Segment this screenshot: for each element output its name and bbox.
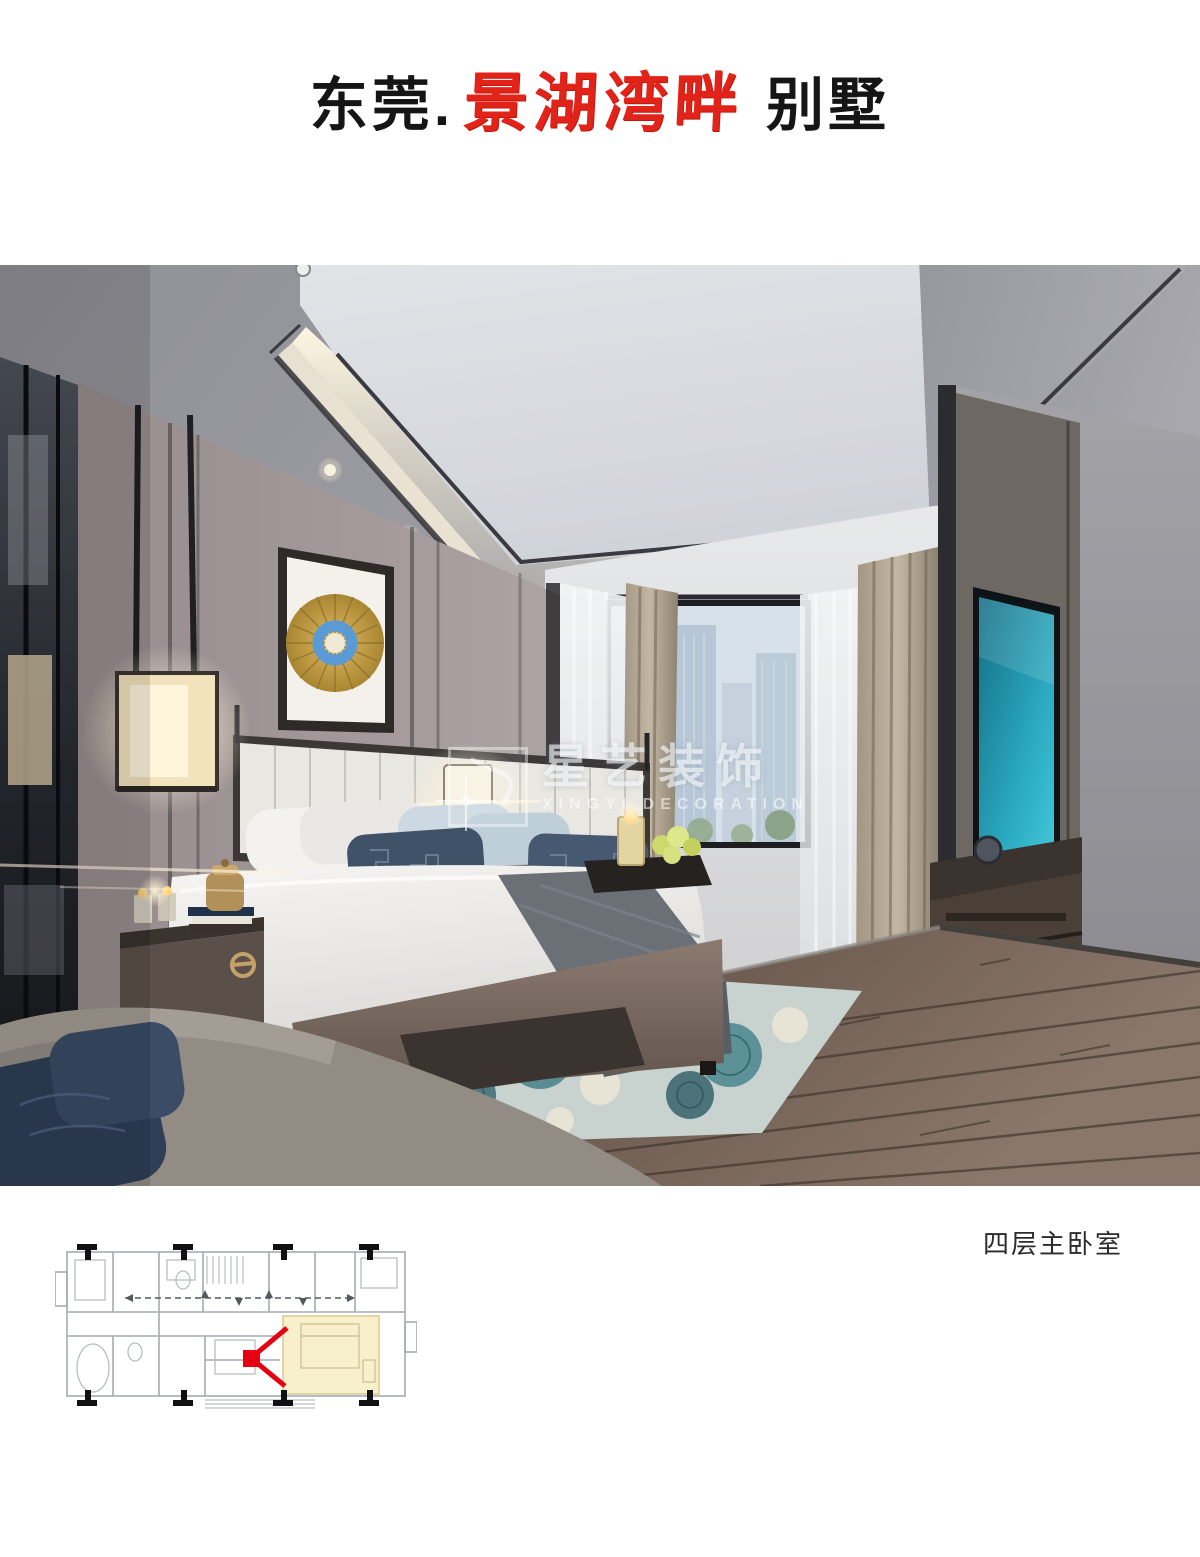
portfolio-page: 东莞.景湖湾畔别墅: [0, 0, 1200, 1557]
globe-decor-icon: [975, 837, 1001, 863]
bedroom-render-photo: 星艺装饰 XINGYI DECORATION: [0, 265, 1200, 1186]
wall-artwork: [278, 547, 394, 733]
photo-caption: 四层主卧室: [983, 1224, 1123, 1261]
bedroom-render-art: [0, 265, 1200, 1186]
title-suffix: 别墅: [766, 73, 890, 138]
title-project-name: 景湖湾畔: [462, 52, 747, 144]
floorplan-drawing: [55, 1240, 417, 1428]
title-city: 东莞.: [310, 73, 454, 138]
page-title: 东莞.景湖湾畔别墅: [0, 52, 1200, 144]
floorplan: [55, 1240, 417, 1428]
plan-highlight-room: [283, 1316, 379, 1394]
